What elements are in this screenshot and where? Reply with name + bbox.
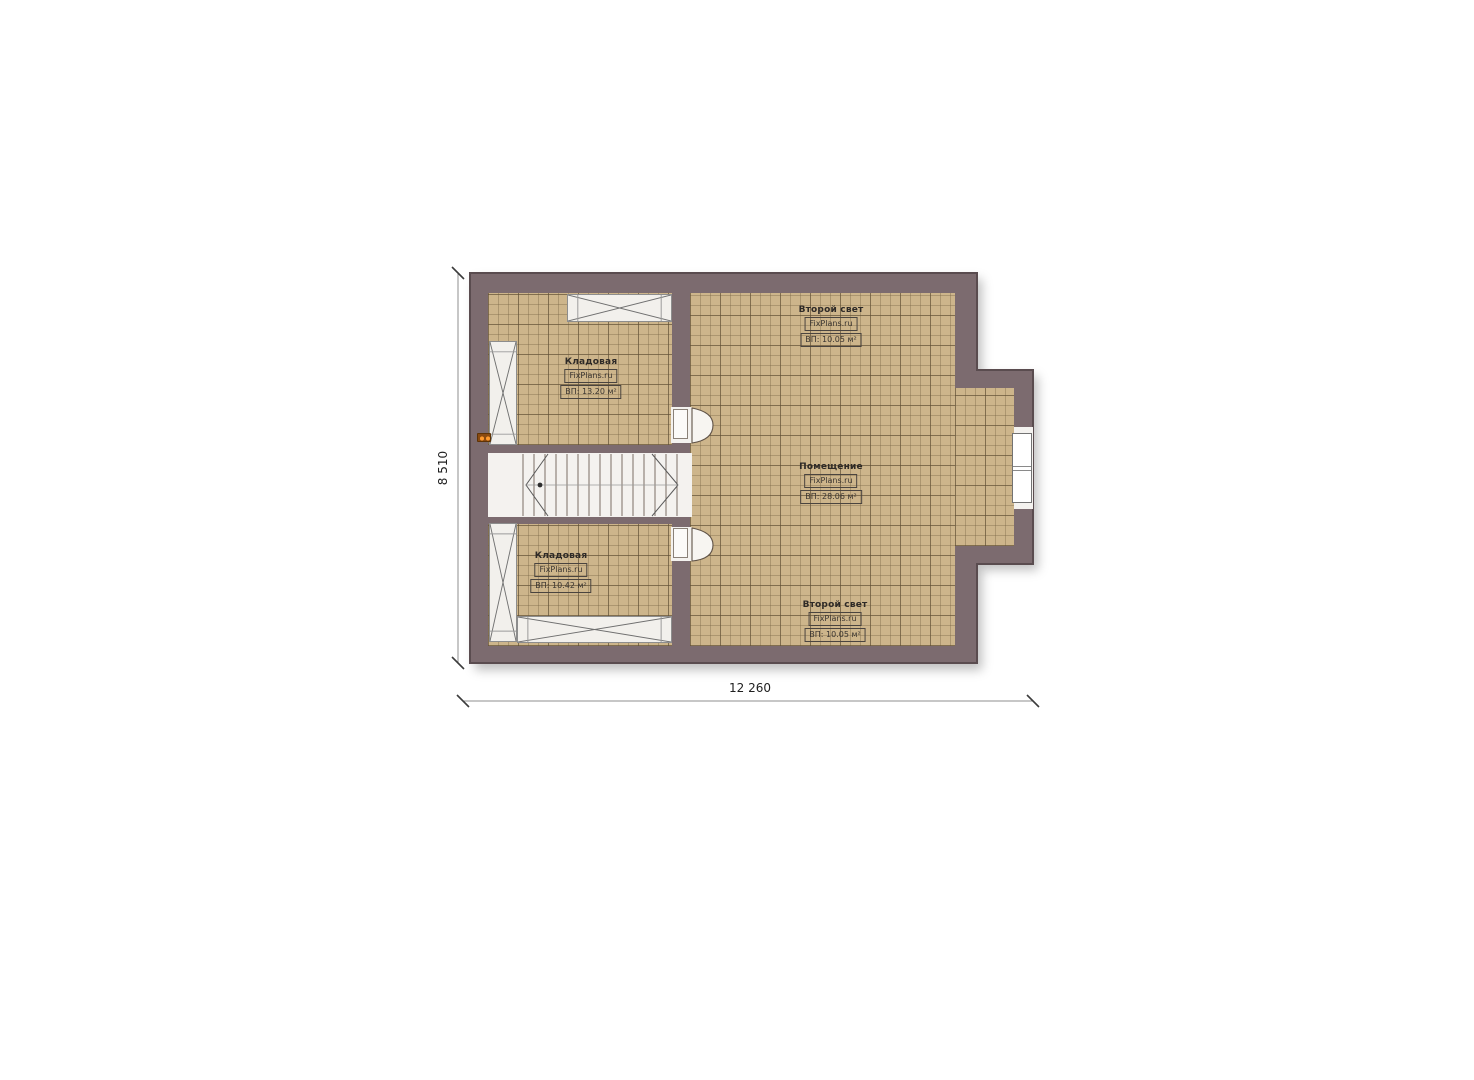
bay-window [1012,433,1032,503]
area-tag: ВП: 13.20 м² [560,385,621,399]
window-mullion [1013,466,1031,467]
crossed-opening-marker-top-wall [567,294,672,322]
x-cross-icon [490,342,516,444]
wall-interior-vertical-upper [672,293,690,407]
floor-plan-canvas: 8 510 12 260 [0,0,1474,1080]
room-name: Второй свет [803,600,868,610]
wall-exterior-right-lower [955,546,977,663]
utility-marker-icon [477,433,491,442]
brand-tag: FixPlans.ru [564,369,617,383]
door-leaf-bottom [673,528,688,558]
brand-tag: FixPlans.ru [534,563,587,577]
room-name: Помещение [799,462,863,472]
crossed-opening-marker-left-upper [489,341,517,445]
room-label-storage-top: Кладовая FixPlans.ru ВП: 13.20 м² [560,357,621,399]
wall-stair-bottom [488,516,692,524]
dimension-label-horizontal: 12 260 [729,681,771,695]
brand-tag: FixPlans.ru [808,612,861,626]
floor-bay [955,388,1014,546]
wall-exterior-left [470,274,488,663]
door-leaf-top [673,409,688,439]
x-cross-icon [518,617,671,642]
crossed-opening-marker-bottom-wall [517,616,672,643]
area-tag: ВП: 10.42 м² [530,579,591,593]
x-cross-icon [568,295,671,321]
room-name: Кладовая [565,357,618,367]
wall-interior-vertical-lower [672,560,690,646]
wall-exterior-top [470,274,977,293]
brand-tag: FixPlans.ru [804,317,857,331]
dimension-tick [452,267,464,279]
crossed-opening-marker-left-lower [489,523,517,642]
room-label-second-light-top: Второй свет FixPlans.ru ВП: 10.05 м² [799,305,864,347]
area-tag: ВП: 28.06 м² [800,490,861,504]
room-label-storage-bottom: Кладовая FixPlans.ru ВП: 10.42 м² [530,551,591,593]
area-tag: ВП: 10.05 м² [804,628,865,642]
stairwell-void [488,453,692,517]
window-mullion [1013,470,1031,471]
room-label-main-room: Помещение FixPlans.ru ВП: 28.06 м² [799,462,863,504]
wall-stair-top [488,445,692,453]
area-tag: ВП: 10.05 м² [800,333,861,347]
room-name: Кладовая [535,551,588,561]
dimension-tick [452,657,464,669]
dimension-tick [1027,695,1039,707]
room-label-second-light-bottom: Второй свет FixPlans.ru ВП: 10.05 м² [803,600,868,642]
wall-exterior-right-upper [955,274,977,388]
wall-exterior-bottom [470,646,977,663]
dimension-tick [457,695,469,707]
dimension-label-vertical: 8 510 [436,451,450,485]
room-name: Второй свет [799,305,864,315]
x-cross-icon [490,524,516,641]
brand-tag: FixPlans.ru [804,474,857,488]
